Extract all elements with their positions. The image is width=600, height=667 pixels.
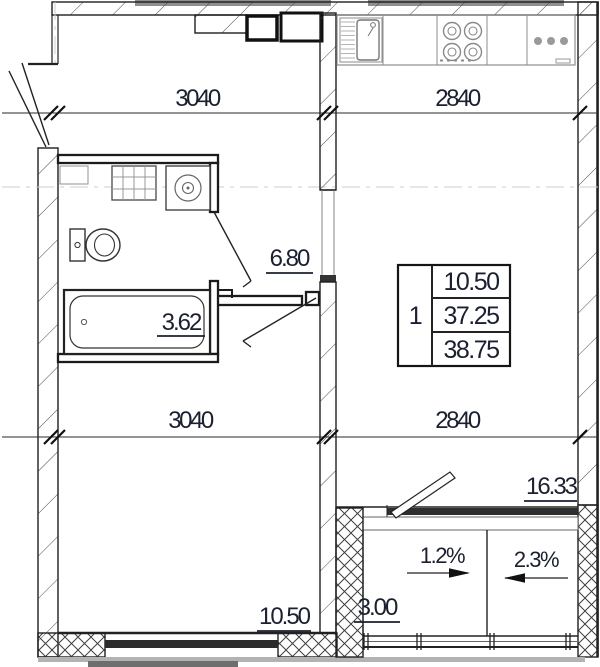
window-frame-band <box>105 640 278 648</box>
info-table-living-area: 10.50 <box>443 268 499 296</box>
bathroom-wall-right-upper <box>210 163 218 212</box>
dim-label-mid-right: 2840 <box>435 407 481 434</box>
dim-label-mid-left: 3040 <box>168 407 214 434</box>
bathroom-wall-bottom <box>58 354 218 362</box>
bathroom-door-leaf <box>214 212 251 281</box>
right-wall-upper <box>578 2 598 505</box>
floorplan-page: 1.2% 2.3% 3040 2840 3040 2840 6.80 3.62 <box>0 0 600 667</box>
bathroom-wall-top <box>58 155 218 163</box>
slope-left-arrow-head <box>449 568 470 578</box>
entry-door <box>9 63 58 147</box>
stove-icon <box>441 23 482 61</box>
svg-text:3.00: 3.00 <box>358 594 398 621</box>
hob-unit-icon <box>534 37 570 63</box>
bathroom <box>58 155 251 362</box>
kitchen-counter <box>337 15 575 65</box>
info-table: 1 10.50 37.25 38.75 <box>398 265 510 366</box>
balcony-window-band <box>387 508 578 515</box>
central-wall-lower <box>320 282 336 633</box>
slope-right-arrow-head <box>504 573 525 583</box>
area-label-room: 10.50 <box>257 603 311 631</box>
balcony-railing <box>363 633 578 650</box>
dim-label-top-right: 2840 <box>435 85 481 112</box>
hall-room-wall <box>216 296 302 305</box>
toilet-icon <box>70 229 120 261</box>
svg-text:10.50: 10.50 <box>259 603 311 630</box>
info-table-total-area: 38.75 <box>443 336 499 364</box>
floorplan-drawing: 1.2% 2.3% 3040 2840 3040 2840 6.80 3.62 <box>0 0 600 667</box>
svg-text:16.33: 16.33 <box>526 473 578 500</box>
radiator-icon <box>112 166 156 200</box>
slope-right: 2.3% <box>504 547 568 583</box>
bathroom-door-tick <box>243 281 251 287</box>
central-wall <box>320 13 336 633</box>
slope-left-label: 1.2% <box>420 543 465 568</box>
ground-bar-dark <box>88 661 238 667</box>
left-wall <box>38 148 58 657</box>
central-wall-upper <box>320 13 336 190</box>
area-label-living-kitchen: 16.33 <box>524 473 578 501</box>
top-wall-niche <box>195 15 247 33</box>
bathroom-wall-right-lower <box>210 281 218 354</box>
info-table-rooms: 1 <box>409 302 422 330</box>
slope-left: 1.2% <box>407 543 470 578</box>
shelf-icon <box>60 166 88 184</box>
entry-door-leaf-a <box>9 71 46 147</box>
svg-text:3.62: 3.62 <box>162 309 202 336</box>
shaft-box-large <box>281 13 322 41</box>
washing-machine-icon <box>166 166 210 210</box>
entry-door-leaf-b <box>22 63 49 145</box>
dim-label-top-left: 3040 <box>175 85 221 112</box>
slope-right-label: 2.3% <box>514 547 559 572</box>
shaft-box-small <box>247 16 277 40</box>
bottom-wall-block-left <box>38 633 105 657</box>
info-table-apartment-area: 37.25 <box>443 302 499 330</box>
balcony-wall-left <box>336 508 363 657</box>
right-wall-lower <box>578 505 598 657</box>
svg-text:6.80: 6.80 <box>270 245 310 272</box>
bottom-wall-block-right <box>278 633 337 657</box>
area-label-bathroom: 3.62 <box>157 309 205 336</box>
area-label-hallway: 6.80 <box>266 245 313 273</box>
doorway-threshold <box>320 275 336 282</box>
kitchen-sink-icon <box>340 18 382 62</box>
area-label-balcony: 3.00 <box>354 594 400 622</box>
room-door-tick <box>243 341 251 347</box>
bathroom-door <box>214 212 251 287</box>
balcony-sill <box>363 517 578 530</box>
